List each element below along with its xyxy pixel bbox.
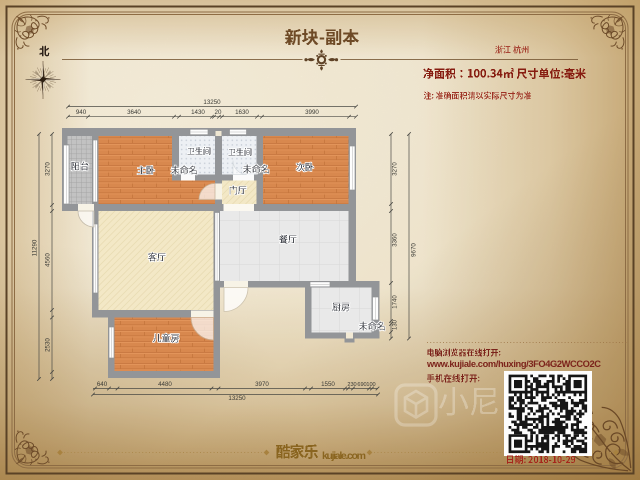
svg-text:9670: 9670	[411, 243, 418, 257]
svg-text:13250: 13250	[228, 395, 246, 402]
svg-text:4560: 4560	[45, 253, 52, 267]
svg-text:690: 690	[357, 382, 366, 388]
svg-text:3270: 3270	[393, 162, 399, 176]
svg-text:3270: 3270	[45, 162, 52, 176]
svg-text:940: 940	[76, 109, 87, 116]
svg-text:4480: 4480	[158, 381, 172, 388]
svg-text:kujiale.com: kujiale.com	[322, 450, 366, 462]
svg-text:www.kujiale.com/huxing/3FO4G2W: www.kujiale.com/huxing/3FO4G2WCCO2C	[426, 359, 601, 369]
svg-text:640: 640	[97, 381, 108, 388]
svg-text:1550: 1550	[321, 381, 335, 388]
svg-text:1740: 1740	[393, 295, 399, 309]
svg-text:3990: 3990	[305, 109, 319, 116]
svg-text:2530: 2530	[45, 338, 52, 352]
svg-text:1630: 1630	[235, 109, 249, 116]
svg-text:1430: 1430	[191, 109, 205, 116]
svg-text:13250: 13250	[203, 99, 221, 106]
svg-text:230: 230	[347, 382, 356, 388]
svg-text:130: 130	[393, 319, 399, 330]
svg-text:3640: 3640	[127, 109, 141, 116]
svg-text:3970: 3970	[255, 381, 269, 388]
svg-text:20: 20	[215, 109, 222, 116]
svg-text:100: 100	[366, 382, 375, 388]
svg-text:3360: 3360	[393, 233, 399, 247]
svg-text:11290: 11290	[32, 239, 39, 256]
